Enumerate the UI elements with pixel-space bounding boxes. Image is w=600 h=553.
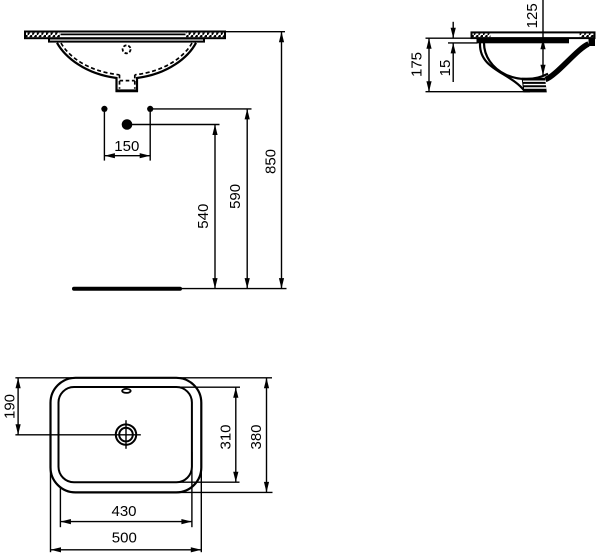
svg-text:430: 430 — [111, 503, 136, 520]
svg-text:380: 380 — [248, 424, 265, 449]
svg-text:540: 540 — [195, 204, 212, 229]
svg-text:590: 590 — [227, 184, 244, 209]
svg-text:15: 15 — [437, 60, 454, 77]
svg-text:190: 190 — [1, 394, 18, 419]
svg-text:500: 500 — [112, 530, 137, 547]
svg-text:175: 175 — [409, 52, 426, 77]
svg-text:310: 310 — [217, 424, 234, 449]
svg-text:850: 850 — [262, 149, 279, 174]
svg-text:125: 125 — [524, 3, 541, 28]
svg-text:150: 150 — [114, 138, 139, 155]
